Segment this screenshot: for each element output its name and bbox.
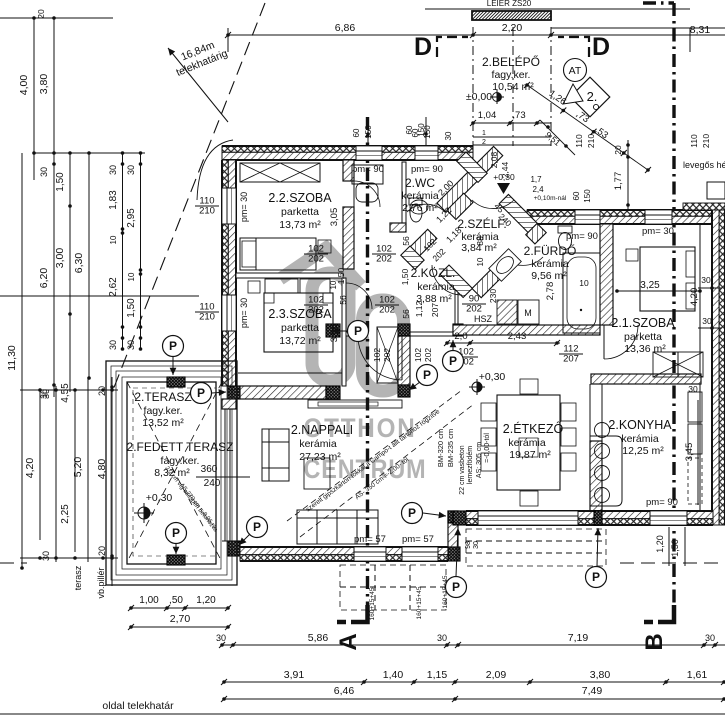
svg-text:pm= 30: pm= 30 [642,226,674,237]
svg-text:2,25: 2,25 [60,504,71,524]
svg-text:1,20: 1,20 [196,595,216,606]
svg-text:pm= 90: pm= 90 [646,497,678,508]
svg-text:2,4: 2,4 [532,185,544,194]
svg-text:110: 110 [689,134,699,148]
svg-text:oldal telekhatár: oldal telekhatár [102,700,174,712]
svg-text:202: 202 [423,348,433,362]
svg-text:D: D [414,33,432,61]
svg-text:7,19: 7,19 [568,632,589,644]
svg-text:2.: 2. [587,89,598,104]
svg-text:1,20: 1,20 [655,535,665,553]
svg-text:30: 30 [41,551,51,561]
svg-text:2,43: 2,43 [508,331,527,342]
svg-text:1,50: 1,50 [670,539,680,557]
svg-text:13,52 m²: 13,52 m² [142,417,184,429]
svg-text:13,73 m²: 13,73 m² [279,219,321,231]
svg-text:10: 10 [476,257,485,266]
svg-text:fagy.ker.: fagy.ker. [492,69,531,81]
svg-text:kerámia: kerámia [299,438,337,450]
svg-text:2,70: 2,70 [170,613,191,625]
svg-text:P: P [354,324,362,338]
svg-text:202: 202 [466,304,482,315]
svg-text:102: 102 [372,348,382,362]
svg-text:30: 30 [473,541,480,549]
svg-text:150: 150 [417,123,426,137]
svg-text:2,09: 2,09 [486,669,507,681]
svg-text:6,30: 6,30 [73,253,85,274]
svg-text:202: 202 [379,305,395,316]
svg-text:+0,10m-nál: +0,10m-nál [534,195,567,202]
svg-text:4,20: 4,20 [24,458,36,479]
svg-text:P: P [253,520,261,534]
svg-text:13,36 m²: 13,36 m² [624,343,666,355]
svg-text:30: 30 [108,165,118,175]
svg-text:22 cm vasbeton: 22 cm vasbeton [459,445,466,495]
svg-text:1: 1 [482,130,486,137]
svg-text:3,05: 3,05 [329,208,340,227]
svg-text:=-0,00-tól: =-0,00-tól [484,433,491,463]
svg-text:210: 210 [199,206,215,217]
svg-text:60: 60 [352,128,361,137]
svg-text:A: A [335,633,362,650]
svg-text:11,30: 11,30 [6,345,18,371]
svg-text:1,04: 1,04 [478,110,497,121]
svg-text:fagy.ker.: fagy.ker. [144,405,183,417]
svg-text:vb.pillér: vb.pillér [96,567,106,598]
svg-text:30: 30 [444,131,453,140]
svg-text:2.WC: 2.WC [405,176,435,190]
svg-text:P: P [423,368,431,382]
svg-text:360: 360 [201,464,218,475]
svg-text:2.ÉTKEZŐ: 2.ÉTKEZŐ [503,421,564,436]
svg-text:5,86: 5,86 [308,632,329,644]
svg-text:pm= 57: pm= 57 [402,534,434,545]
svg-text:AT: AT [569,65,582,77]
svg-text:30: 30 [41,389,51,399]
svg-text:30: 30 [705,633,715,643]
svg-text:2,62: 2,62 [108,277,119,297]
svg-text:240: 240 [204,478,221,489]
svg-text:2.FÜRDŐ: 2.FÜRDŐ [524,243,577,258]
svg-text:P: P [408,506,416,520]
svg-text:3,91: 3,91 [284,669,305,681]
svg-text:30: 30 [39,167,49,177]
svg-text:2.1.SZOBA: 2.1.SZOBA [611,316,675,330]
svg-text:2,0: 2,0 [454,331,467,342]
svg-text:202: 202 [376,254,392,265]
svg-text:levegős hézag: levegős hézag [683,160,725,170]
svg-text:2.BELÉPŐ: 2.BELÉPŐ [482,54,540,69]
svg-text:pm= 30: pm= 30 [239,298,249,328]
svg-text:110: 110 [574,134,584,148]
svg-text:10: 10 [109,235,118,244]
svg-text:6,86: 6,86 [335,22,356,34]
svg-text:P: P [449,354,457,368]
svg-text:1,50: 1,50 [126,298,137,318]
svg-text:56: 56 [401,236,411,246]
svg-text:30: 30 [702,316,712,326]
svg-text:3,45: 3,45 [684,443,695,462]
svg-text:HSZ: HSZ [474,314,493,324]
svg-text:P: P [172,526,180,540]
svg-text:4,00: 4,00 [18,75,30,96]
svg-text:4,55: 4,55 [60,383,71,403]
svg-text:1,12: 1,12 [414,300,424,317]
svg-text:,73: ,73 [512,110,525,121]
svg-text:30: 30 [108,340,118,350]
svg-text:12,25 m²: 12,25 m² [622,445,664,457]
svg-text:parketta: parketta [281,206,319,218]
svg-text:20: 20 [613,145,623,155]
svg-text:lemezfödém: lemezfödém [467,446,474,484]
svg-text:13,72 m²: 13,72 m² [279,335,321,347]
svg-text:2,20: 2,20 [502,22,523,34]
svg-text:1,7: 1,7 [530,175,542,184]
svg-text:2.NAPPALI: 2.NAPPALI [291,423,353,437]
svg-text:kerámia: kerámia [508,437,546,449]
svg-text:1,15: 1,15 [427,669,448,681]
svg-text:6,20: 6,20 [38,268,50,289]
svg-text:5,20: 5,20 [72,457,84,478]
svg-text:2.KÖZL.: 2.KÖZL. [411,266,456,280]
svg-text:1,50: 1,50 [400,268,410,285]
svg-text:2.FEDETT TERASZ: 2.FEDETT TERASZ [127,440,234,454]
svg-text:210: 210 [586,134,596,148]
svg-text:3,05: 3,05 [329,324,340,343]
svg-text:3,25: 3,25 [640,280,660,291]
svg-text:160+15+45: 160+15+45 [416,586,423,619]
svg-text:1,00: 1,00 [139,595,159,606]
svg-text:B: B [641,633,668,650]
svg-text:2.KONYHA: 2.KONYHA [608,418,672,432]
svg-text:230: 230 [488,289,498,303]
svg-text:3,00: 3,00 [54,248,66,269]
svg-text:8,31: 8,31 [690,24,711,36]
svg-text:60: 60 [572,191,581,200]
svg-text:BM-320 cm: BM-320 cm [436,429,445,467]
svg-text:20: 20 [36,9,46,19]
svg-text:88: 88 [475,236,485,246]
svg-text:98: 98 [465,541,472,549]
svg-text:3,80: 3,80 [590,669,611,681]
svg-text:P: P [592,570,600,584]
svg-text:1,50: 1,50 [336,267,346,284]
svg-text:2.2.SZOBA: 2.2.SZOBA [268,191,332,205]
svg-text:150: 150 [364,125,373,139]
svg-text:M: M [524,308,532,318]
svg-text:210: 210 [199,312,215,323]
svg-text:30: 30 [126,340,136,350]
svg-text:1,50: 1,50 [55,172,66,192]
svg-text:AS: 305 cm: AS: 305 cm [476,442,483,478]
svg-text:3,80: 3,80 [38,74,50,95]
svg-text:210: 210 [701,134,711,148]
svg-text:terasz: terasz [73,565,83,590]
svg-text:2,08: 2,08 [489,151,499,168]
svg-text:2.TERASZ: 2.TERASZ [134,390,191,404]
svg-text:P: P [452,580,460,594]
svg-text:27,23 m²: 27,23 m² [299,451,341,463]
svg-text:2: 2 [482,139,486,146]
svg-text:10: 10 [127,272,136,281]
svg-text:56: 56 [401,309,411,319]
svg-text:2,76 m²: 2,76 m² [402,202,438,214]
svg-text:30: 30 [126,165,136,175]
svg-text:P: P [169,339,177,353]
svg-text:207: 207 [563,354,579,365]
svg-text:pm= 90: pm= 90 [411,164,443,175]
svg-text:6,46: 6,46 [334,685,355,697]
svg-text:1,40: 1,40 [383,669,404,681]
svg-text:7,49: 7,49 [582,685,603,697]
svg-text:2,95: 2,95 [126,208,137,228]
svg-text:10,54 m²: 10,54 m² [492,81,534,93]
svg-text:kerámia: kerámia [417,281,455,293]
svg-text:+0,30: +0,30 [479,371,506,383]
svg-text:,50: ,50 [169,595,183,606]
svg-text:parketta: parketta [624,331,662,343]
svg-text:1,77: 1,77 [613,172,624,191]
svg-text:parketta: parketta [281,322,319,334]
svg-text:D: D [592,33,610,61]
svg-text:160+15+45: 160+15+45 [369,587,376,620]
svg-text:pm= 57: pm= 57 [354,534,386,545]
svg-text:102: 102 [413,348,423,362]
svg-text:9,56 m²: 9,56 m² [531,270,567,282]
svg-text:kerámia: kerámia [621,433,659,445]
svg-text:207: 207 [430,303,440,317]
svg-text:10: 10 [579,278,589,288]
svg-text:±0,00: ±0,00 [466,91,492,103]
svg-text:2,78: 2,78 [545,282,556,301]
svg-text:150: 150 [583,189,592,203]
svg-text:1,83: 1,83 [108,190,119,210]
svg-text:202: 202 [308,305,324,316]
svg-text:60: 60 [405,125,414,134]
svg-text:30: 30 [701,275,711,285]
svg-text:BM-235 cm: BM-235 cm [446,429,455,467]
svg-text:56: 56 [338,295,348,305]
svg-text:202: 202 [382,348,392,362]
svg-text:30: 30 [688,384,698,394]
svg-text:LEIER ZS20: LEIER ZS20 [487,0,532,8]
svg-text:30: 30 [216,633,226,643]
svg-text:30: 30 [437,633,447,643]
svg-text:1,61: 1,61 [687,669,708,681]
svg-text:19,87 m²: 19,87 m² [509,449,551,461]
svg-text:P: P [197,386,205,400]
svg-text:+0,30: +0,30 [146,492,173,504]
svg-text:pm= 30: pm= 30 [239,192,249,222]
svg-text:pm= 90: pm= 90 [352,164,384,175]
svg-text:+0,30: +0,30 [493,172,515,182]
